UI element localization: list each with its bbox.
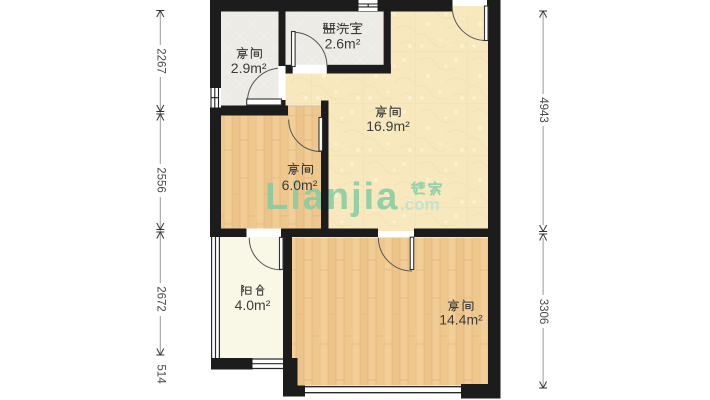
svg-text:2.9m²: 2.9m² <box>231 60 267 76</box>
svg-text:16.9m²: 16.9m² <box>366 118 410 134</box>
svg-text:3306: 3306 <box>537 299 549 325</box>
svg-text:14.4m²: 14.4m² <box>439 312 483 328</box>
svg-text:.com: .com <box>400 195 440 214</box>
svg-text:2556: 2556 <box>154 167 166 193</box>
svg-text:2672: 2672 <box>154 286 166 312</box>
svg-text:514: 514 <box>154 364 166 384</box>
svg-text:4943: 4943 <box>537 97 549 123</box>
svg-text:2267: 2267 <box>154 48 166 74</box>
svg-text:6.0m²: 6.0m² <box>282 177 318 193</box>
svg-text:4.0m²: 4.0m² <box>235 297 271 313</box>
svg-text:2.6m²: 2.6m² <box>325 36 361 52</box>
